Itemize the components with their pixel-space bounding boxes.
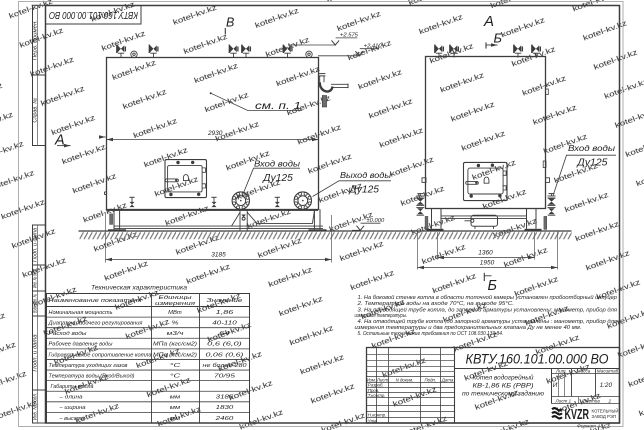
svg-text:+2.410: +2.410 (364, 44, 383, 50)
svg-text:Значение: Значение (207, 298, 243, 304)
svg-text:3185: 3185 (216, 395, 235, 401)
svg-text:– длина: – длина (58, 395, 82, 401)
svg-text:1:20: 1:20 (600, 382, 613, 389)
svg-text:Гидравлическое сопротивление к: Гидравлическое сопротивление котла (49, 352, 152, 358)
svg-text:2930: 2930 (207, 130, 223, 137)
svg-text:KVZR: KVZR (565, 407, 590, 423)
svg-text:Диапазон рабочего регулировани: Диапазон рабочего регулирования (47, 320, 142, 326)
svg-text:Утв.: Утв. (368, 419, 378, 424)
svg-text:– высота: – высота (59, 416, 85, 422)
svg-text:+2.575: +2.575 (340, 33, 359, 39)
svg-text:А: А (54, 133, 65, 149)
svg-text:1950: 1950 (480, 260, 495, 267)
svg-text:И: И (553, 382, 558, 389)
svg-text:1830: 1830 (216, 405, 235, 411)
svg-text:Лист: Лист (555, 398, 568, 403)
svg-text:°С: °С (170, 373, 182, 379)
svg-text:не более 280: не более 280 (203, 363, 248, 369)
svg-text:Б: Б (488, 278, 497, 294)
svg-text:±0.000: ±0.000 (367, 218, 385, 224)
svg-text:Ду125: Ду125 (348, 185, 379, 196)
svg-text:мм: мм (170, 405, 181, 411)
svg-text:Изм.: Изм. (367, 377, 376, 382)
svg-text:N докум.: N докум. (396, 377, 414, 382)
svg-text:измерения: измерения (155, 301, 195, 307)
svg-text:Справ. №: Справ. № (33, 97, 39, 122)
svg-text:Расход воды: Расход воды (49, 331, 87, 337)
svg-text:2. Температура воды на входе: 2. Температура воды на входе 70°С, на вы… (356, 301, 514, 307)
svg-text:Подп. и дата: Подп. и дата (33, 334, 39, 371)
svg-text:– ширина: – ширина (58, 405, 85, 411)
svg-text:Н.контр.: Н.контр. (368, 413, 387, 418)
svg-text:мм: мм (170, 416, 181, 422)
svg-text:2460: 2460 (214, 416, 234, 422)
svg-text:КОТЕЛЬНЫЙ: КОТЕЛЬНЫЙ (592, 408, 619, 413)
svg-text:Рабочее давление воды: Рабочее давление воды (49, 342, 113, 348)
svg-text:Взам. инв. №: Взам. инв. № (33, 294, 39, 313)
svg-text:0,6 (6,0): 0,6 (6,0) (207, 342, 242, 348)
svg-text:5. Остальные технические треб: 5. Остальные технические требования по О… (358, 331, 504, 337)
svg-text:Вход воды: Вход воды (254, 158, 300, 168)
svg-text:Масштаб: Масштаб (597, 369, 619, 374)
svg-text:Габариты котла: Габариты котла (51, 384, 94, 390)
svg-text:МВт: МВт (168, 310, 182, 316)
svg-text:40-110: 40-110 (212, 320, 238, 326)
svg-text:Т.контр.: Т.контр. (368, 393, 386, 398)
svg-text:%: % (171, 320, 178, 326)
svg-text:МПа (кгс/см2): МПа (кгс/см2) (153, 352, 197, 358)
svg-text:2: 2 (608, 398, 612, 403)
svg-text:1: 1 (569, 398, 572, 403)
svg-text:по техническому заданию: по техническому заданию (462, 390, 544, 398)
svg-text:А: А (483, 13, 494, 30)
svg-text:м3/ч: м3/ч (167, 331, 184, 337)
svg-text:64: 64 (219, 331, 230, 337)
svg-text:1360: 1360 (478, 249, 493, 256)
svg-text:Формат А3: Формат А3 (577, 423, 604, 429)
svg-text:1,86: 1,86 (216, 310, 235, 316)
svg-text:Дата: Дата (441, 377, 454, 382)
svg-text:Ду125: Ду125 (576, 158, 607, 169)
svg-text:Номинальная мощность: Номинальная мощность (49, 310, 113, 316)
svg-text:0,06 (0,6): 0,06 (0,6) (206, 352, 244, 358)
svg-text:3185: 3185 (211, 252, 226, 259)
svg-text:Подп. и дата: Подп. и дата (33, 228, 39, 262)
svg-text:Лист: Лист (376, 377, 389, 382)
svg-text:Выход воды: Выход воды (340, 170, 391, 180)
svg-text:МПа (кгс/см2): МПа (кгс/см2) (153, 342, 197, 348)
svg-text:Котел водогрейный: Котел водогрейный (473, 374, 534, 382)
svg-text:мм: мм (170, 395, 181, 401)
svg-text:Наименование показателя: Наименование показателя (49, 298, 142, 304)
svg-text:1. На боковой стенке котла в: 1. На боковой стенке котла в области топ… (358, 294, 618, 301)
svg-text:Перв. примен.: Перв. примен. (33, 20, 39, 60)
svg-text:ЗАВОД РЭП: ЗАВОД РЭП (592, 414, 617, 419)
svg-text:см. п. 1: см. п. 1 (255, 101, 301, 112)
svg-text:Вход воды: Вход воды (568, 143, 615, 153)
svg-text:Техническая характеристика: Техническая характеристика (91, 286, 188, 292)
svg-text:В: В (226, 15, 234, 29)
svg-text:КВТУ.160.101.00.000 ВО: КВТУ.160.101.00.000 ВО (49, 9, 138, 20)
svg-text:°С: °С (170, 363, 182, 369)
svg-text:Инв. № дубл.: Инв. № дубл. (33, 268, 39, 288)
svg-text:70/95: 70/95 (214, 373, 236, 379)
svg-text:Ду125: Ду125 (262, 173, 293, 184)
svg-text:Инв. № подл.: Инв. № подл. (33, 393, 39, 420)
svg-text:Подп.: Подп. (424, 377, 436, 382)
svg-text:Температура воды (Вход/Выход): Температура воды (Вход/Выход) (49, 373, 135, 379)
svg-text:КВ-1,86 КБ (РВР): КВ-1,86 КБ (РВР) (473, 383, 534, 390)
svg-text:Листов: Листов (582, 398, 600, 403)
svg-text:Масса: Масса (577, 369, 591, 374)
svg-text:КВТУ.160.101.00.000 ВО: КВТУ.160.101.00.000 ВО (466, 352, 609, 367)
svg-text:Температура уходящих газов: Температура уходящих газов (49, 363, 128, 369)
svg-text:Б: Б (494, 30, 503, 45)
svg-text:Лит.: Лит. (555, 369, 567, 374)
